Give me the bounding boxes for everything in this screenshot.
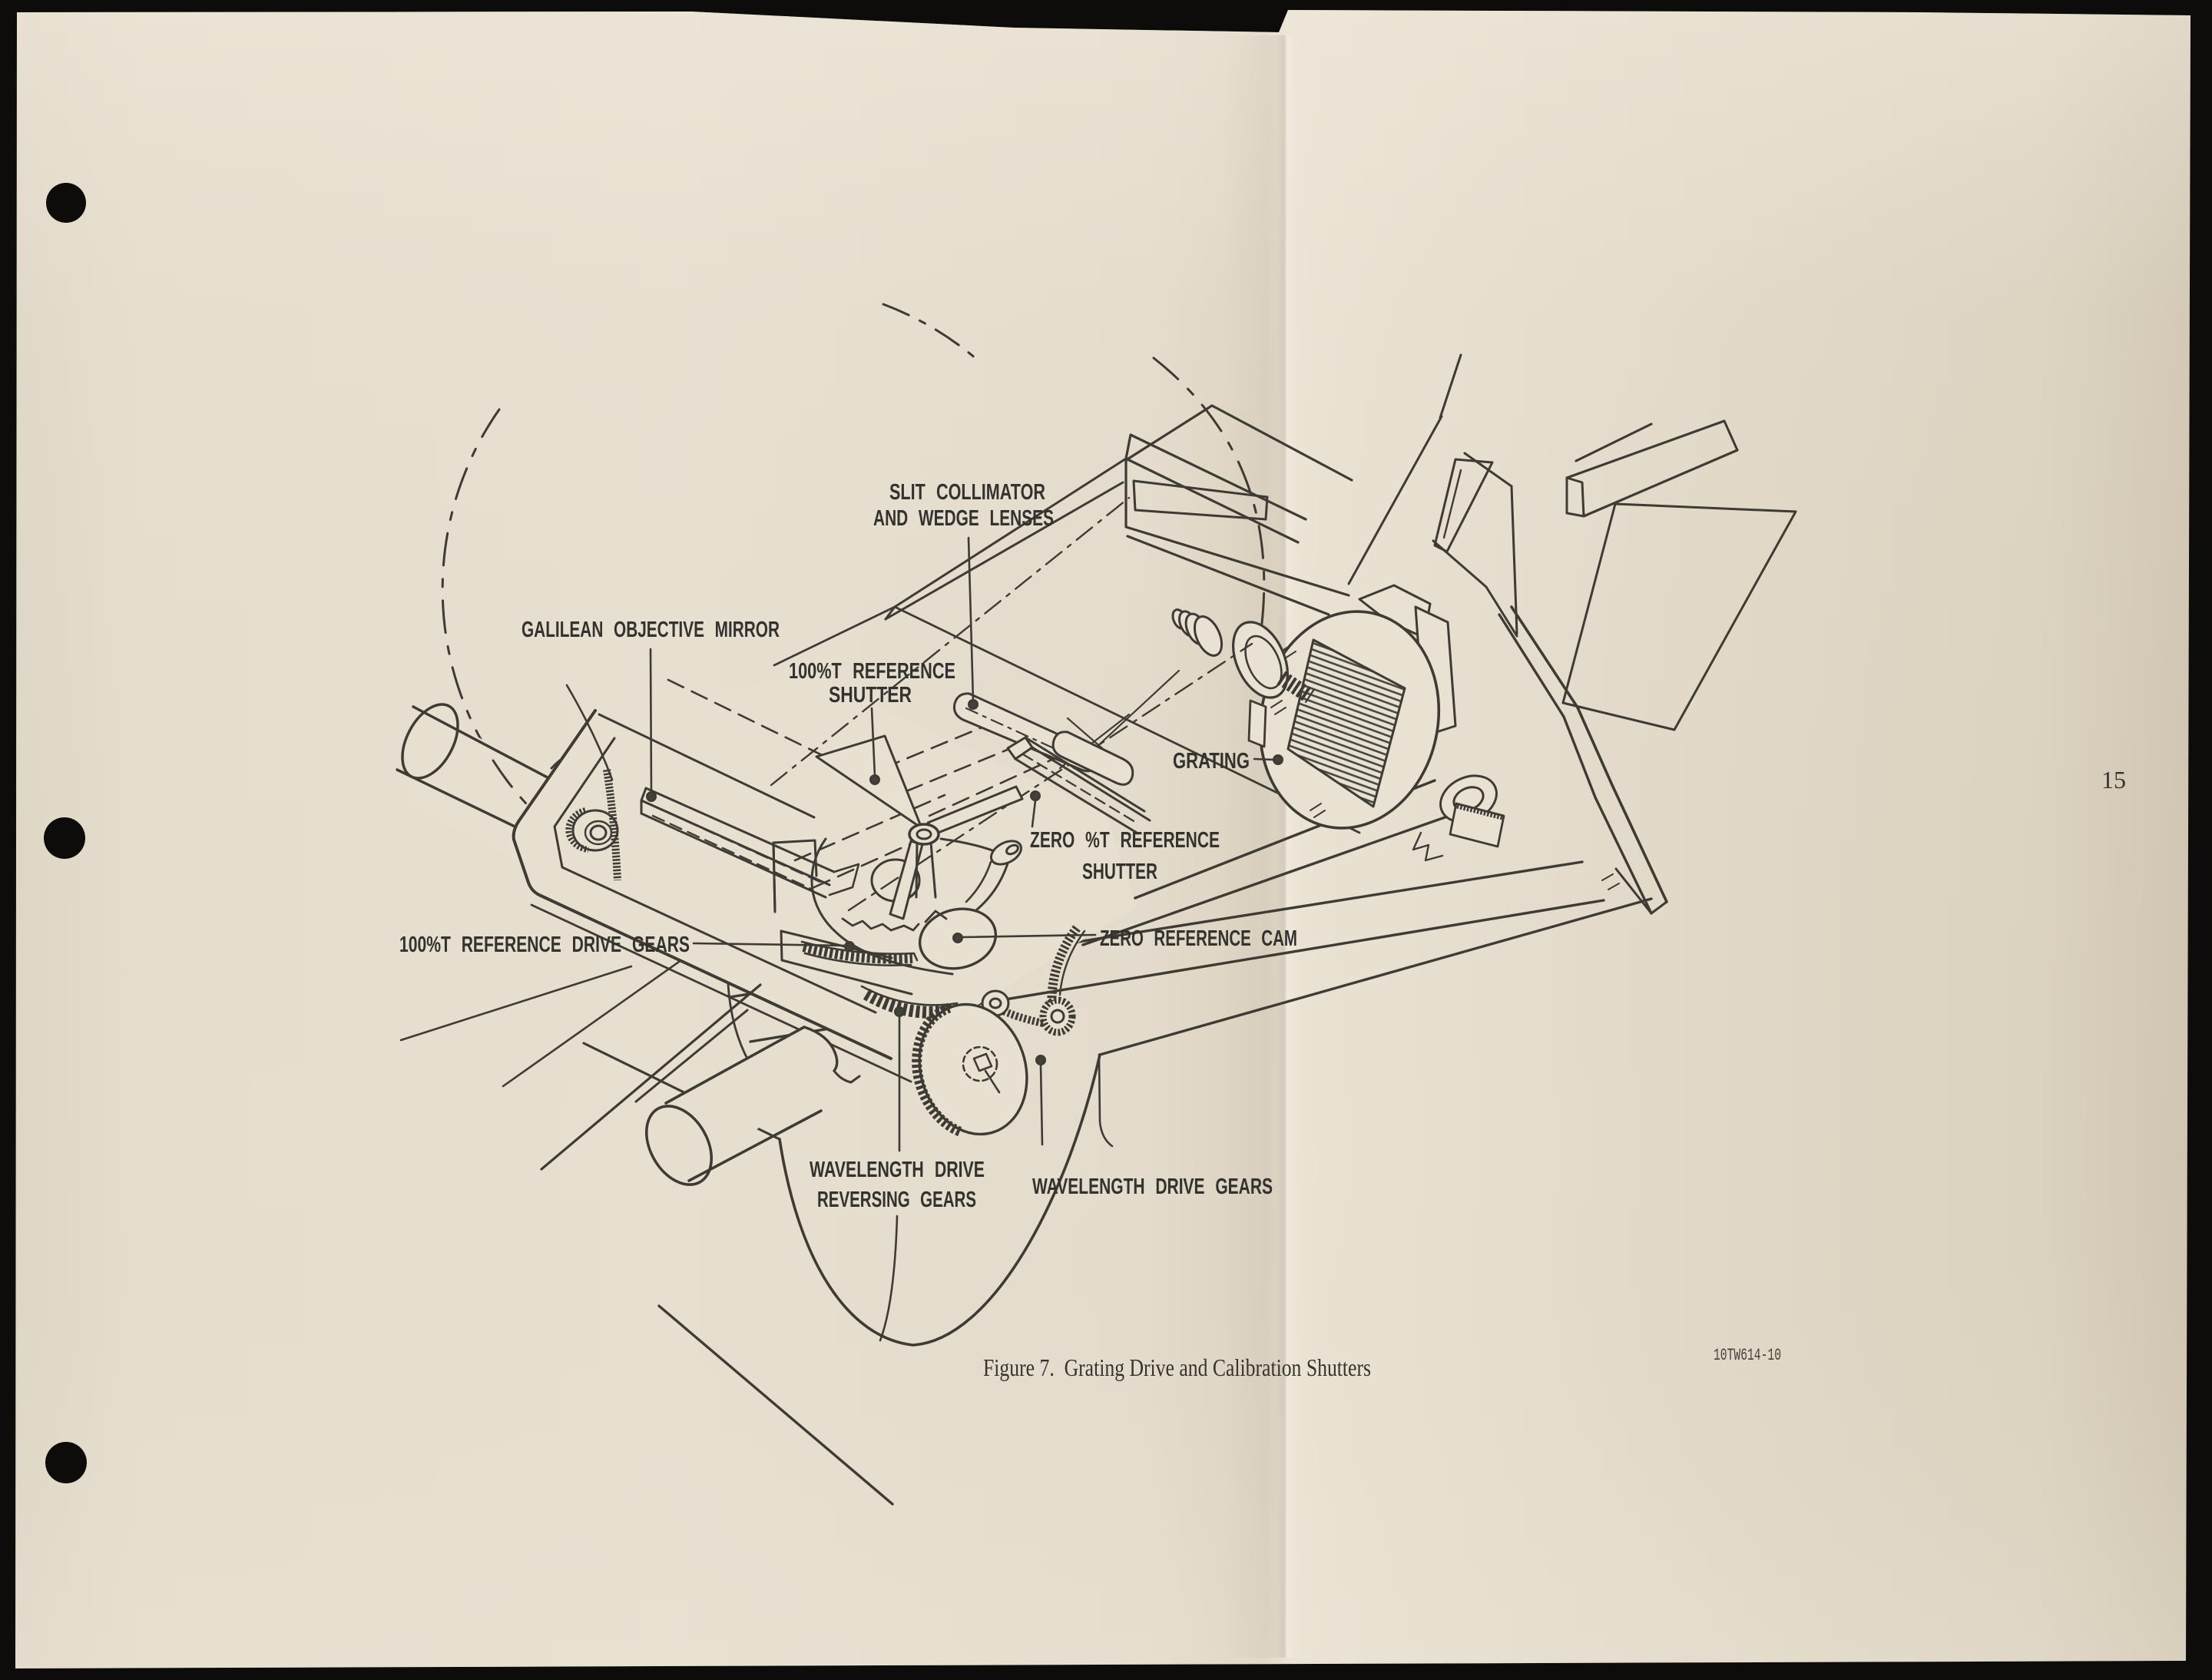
- svg-text:WAVELENGTH DRIVE GEARS: WAVELENGTH DRIVE GEARS: [1032, 1175, 1273, 1199]
- svg-text:ZERO %T REFERENCE: ZERO %T REFERENCE: [1030, 828, 1220, 853]
- svg-text:GRATING: GRATING: [1173, 749, 1250, 774]
- svg-text:100%T REFERENCE DRIVE GEARS: 100%T REFERENCE DRIVE GEARS: [399, 933, 690, 957]
- svg-text:AND WEDGE LENSES: AND WEDGE LENSES: [873, 506, 1054, 531]
- svg-text:GALILEAN OBJECTIVE MIRROR: GALILEAN OBJECTIVE MIRROR: [522, 618, 780, 642]
- svg-text:100%T REFERENCE: 100%T REFERENCE: [789, 659, 955, 684]
- svg-text:15: 15: [2101, 766, 2126, 794]
- svg-text:10TW614-10: 10TW614-10: [1714, 1346, 1781, 1365]
- svg-text:ZERO REFERENCE CAM: ZERO REFERENCE CAM: [1100, 926, 1297, 951]
- svg-text:SHUTTER: SHUTTER: [1082, 860, 1157, 884]
- svg-text:Figure 7. Grating Drive and C: Figure 7. Grating Drive and Calibration …: [983, 1354, 1371, 1381]
- svg-text:SHUTTER: SHUTTER: [829, 683, 912, 707]
- svg-text:SLIT COLLIMATOR: SLIT COLLIMATOR: [889, 480, 1045, 505]
- svg-text:REVERSING GEARS: REVERSING GEARS: [817, 1188, 976, 1212]
- svg-text:WAVELENGTH DRIVE: WAVELENGTH DRIVE: [810, 1158, 985, 1182]
